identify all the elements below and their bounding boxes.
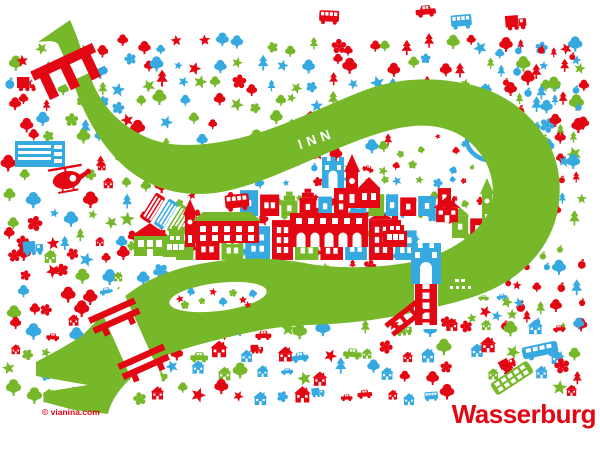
flower-icon [249,101,262,114]
tree-icon [77,129,91,144]
flower-icon [396,149,405,158]
truck-icon [505,14,527,30]
star-icon [140,77,158,94]
house-icon [566,385,578,396]
pine-icon [76,228,85,241]
house-icon [403,393,415,405]
pine-icon [497,65,505,77]
star-icon [491,310,503,322]
house-icon [113,272,123,282]
tree-icon [417,146,426,155]
star-icon [177,74,191,88]
car-icon [343,348,362,360]
pine-icon [310,37,318,50]
tree-icon [18,285,29,297]
star-icon [346,77,360,91]
pine-icon [559,91,568,105]
tree-icon [532,282,541,292]
tree-icon [64,211,78,227]
townhouse [400,197,416,216]
tree-icon [4,188,16,201]
star-icon [415,175,424,184]
star-icon [78,251,95,268]
house-icon [210,341,227,358]
fruit-icon [569,52,575,60]
gatesmall-icon [322,157,344,188]
flower-icon [20,269,32,281]
pine-icon [402,40,412,55]
townhouse [418,196,436,216]
tree-icon [302,60,315,74]
tree-icon [137,95,147,105]
house-icon [11,344,21,354]
flower-icon [26,214,44,232]
house-icon [312,372,327,386]
star-icon [539,61,549,70]
star-icon [231,55,245,68]
star-icon [577,194,587,204]
tree-icon [156,45,165,54]
house-icon [151,386,165,399]
pine-icon [98,82,107,96]
flower-icon [111,101,125,115]
pine-icon [551,47,558,57]
star-icon [46,236,60,249]
car-icon [496,293,507,300]
tree-icon [216,33,229,47]
star-icon [1,360,16,374]
house-icon [294,386,311,402]
bus-icon [424,391,438,401]
tree-icon [29,129,39,140]
tree-icon [6,379,21,396]
fruit-icon [513,66,521,76]
tree-icon [448,165,458,175]
tree-icon [436,339,451,356]
house-icon [95,237,105,246]
star-icon [158,113,175,129]
house-icon [535,366,548,379]
house-icon [481,320,492,330]
house-icon [103,178,114,189]
flower-icon [276,389,290,403]
copyright: © vianina.com [42,407,100,417]
flower-icon [421,53,431,63]
tree-icon [214,379,228,394]
longbuilding-icon [193,212,261,243]
tree-icon [452,147,460,155]
tree-icon [440,384,454,400]
pine-icon [516,93,524,105]
pine-icon [268,80,276,92]
car-icon [190,352,208,363]
flower-icon [65,246,80,261]
house-icon [278,346,294,361]
fruit-icon [558,282,566,292]
star-icon [187,60,203,76]
tree-icon [214,93,226,105]
pine-icon [258,55,269,71]
tree-icon [74,300,89,317]
tree-icon [26,323,42,340]
tree-icon [152,90,166,105]
star-icon [552,379,568,395]
pine-icon [573,171,580,182]
house-icon [253,392,267,406]
car-icon [46,333,60,342]
tree-icon [380,41,390,52]
tree-icon [276,95,286,106]
tree-icon [20,169,30,180]
truck-icon [23,240,44,256]
tree-icon [579,80,589,91]
star-icon [478,304,494,319]
helicopter-icon [48,162,94,195]
fruit-icon [311,163,318,172]
flower-icon [377,338,394,355]
tree-icon [552,260,566,275]
tree-icon [210,76,220,87]
flower-icon [132,391,147,406]
fruit-icon [579,298,585,306]
car-icon [291,351,309,363]
townhouse [272,220,293,260]
tree-icon [189,112,199,123]
pine-icon [569,210,579,225]
car-icon [478,295,489,301]
fruit-icon [578,259,586,269]
flower-icon [408,160,417,169]
gate-icon [411,243,441,284]
star-icon [391,174,404,186]
house-icon [421,348,436,362]
fruit-icon [573,85,580,94]
flower-icon [65,113,78,126]
parking-icon [15,141,65,167]
townhouse [386,194,398,216]
tree-icon [117,246,130,260]
star-icon [377,164,390,176]
pine-icon [531,96,542,112]
tree-icon [344,46,353,56]
tree-icon [231,35,243,48]
flower-icon [266,41,279,54]
tree-icon [10,317,21,329]
pine-icon [329,72,338,85]
tree-icon [426,371,439,385]
tree-icon [467,35,476,45]
star-icon [286,92,298,104]
star-icon [173,60,183,70]
star-icon [103,214,120,231]
tree-icon [342,58,357,74]
pine-icon [570,131,578,142]
star-icon [33,40,49,56]
flower-icon [460,177,467,184]
flower-icon [432,177,444,189]
townhouse [281,192,297,216]
tree-icon [122,177,131,187]
tree-icon [117,34,128,45]
star-icon [504,342,522,360]
tree-icon [568,36,582,51]
tree-icon [208,119,217,129]
tree-icon [214,60,226,73]
star-icon [199,34,211,46]
tree-icon [180,95,190,106]
car-icon [281,368,293,376]
flower-icon [21,347,35,361]
star-icon [119,211,135,226]
star-icon [512,280,522,289]
tree-icon [440,63,452,76]
star-icon [228,95,246,113]
tree-icon [449,176,456,183]
car-icon [255,331,271,340]
bus-icon [450,14,472,30]
tree-icon [102,253,111,263]
flower-icon [313,176,324,186]
pine-icon [43,99,51,111]
house-icon [528,320,543,335]
pine-icon [573,371,582,384]
tree-icon [30,303,40,314]
star-icon [434,132,441,139]
pine-icon [551,94,558,105]
car-icon [415,4,436,18]
star-icon [289,80,304,95]
tree-icon [27,387,42,404]
pine-icon [560,59,569,72]
star-icon [322,347,339,364]
tree-icon [233,362,248,378]
pine-icon [156,70,167,87]
pine-icon [571,279,582,295]
house-icon [480,337,496,353]
star-icon [573,62,586,75]
car-icon [357,389,372,399]
tree-icon [521,70,535,85]
star-icon [87,208,99,219]
tree-icon [83,191,98,208]
tree-icon [36,112,49,126]
star-icon [189,385,208,403]
house-icon [68,314,80,325]
star-icon [507,309,518,319]
fruit-icon [470,164,475,170]
townhouse [260,195,279,217]
townhouse [300,189,317,216]
car-icon [362,164,375,174]
truck-icon [251,345,264,354]
flower-icon [232,74,247,89]
tree-icon [547,77,561,92]
tree-icon [178,382,188,392]
flower-icon [55,262,70,276]
tree-icon [569,348,581,361]
house-icon [487,368,499,379]
bus-icon [319,10,340,25]
tree-icon [400,371,410,382]
tree-icon [26,192,41,208]
tree-icon [270,110,283,124]
house-icon [43,250,57,263]
house-icon [256,365,268,377]
flower-icon [305,80,319,94]
pine-icon [335,357,346,373]
pine-icon [361,320,370,334]
wasserburg-poster: INN Wasserburg © vianina.com [0,0,600,450]
fruit-icon [503,78,509,86]
star-icon [232,389,246,403]
pine-icon [424,33,434,48]
tree-icon [333,54,343,64]
tree-icon [285,46,295,57]
star-icon [466,312,477,323]
pine-icon [536,301,545,314]
church-icon [344,154,380,208]
tree-icon [447,35,460,49]
tree-icon [138,41,150,54]
house-icon [402,352,413,363]
pine-icon [455,63,465,78]
star-icon [49,208,60,218]
pine-icon [523,310,531,322]
tree-icon [550,299,562,312]
flower-icon [42,129,55,142]
star-icon [296,370,313,387]
tree-icon [387,63,400,77]
pine-icon [122,194,132,209]
house-icon [380,367,393,380]
fruit-icon [5,78,14,89]
tree-icon [408,57,419,69]
star-icon [192,73,208,89]
fruit-icon [524,88,531,97]
flower-icon [380,175,389,184]
pine-icon [559,192,567,203]
fruit-icon [540,251,546,259]
house-icon [191,361,205,374]
tree-icon [75,269,89,284]
map-title: Wasserburg [452,399,596,430]
arcade-icon [290,213,368,247]
tree-icon [460,199,470,210]
house-icon [217,367,231,381]
tree-icon [540,100,552,113]
star-icon [282,179,290,187]
house-icon [362,348,373,358]
star-icon [110,82,126,97]
car-icon [341,394,353,401]
star-icon [276,58,290,71]
flower-icon [123,52,137,66]
tree-icon [246,84,257,96]
pine-icon [60,236,69,250]
flower-icon [440,361,452,373]
house-icon [388,390,398,400]
flower-icon [39,303,53,317]
tree-icon [370,41,380,52]
truck-icon [311,387,325,397]
tree-icon [367,359,379,372]
city-map: INN [0,0,600,450]
bus-icon [224,193,250,212]
tree-icon [365,139,378,153]
fruit-icon [544,263,550,271]
tree-icon [392,161,401,170]
star-icon [170,34,182,46]
tree-icon [495,49,504,59]
fruit-icon [559,176,565,184]
tree-icon [1,155,16,172]
tree-icon [61,287,76,303]
tree-icon [150,56,164,71]
fruit-icon [557,245,563,253]
pine-icon [487,58,495,69]
